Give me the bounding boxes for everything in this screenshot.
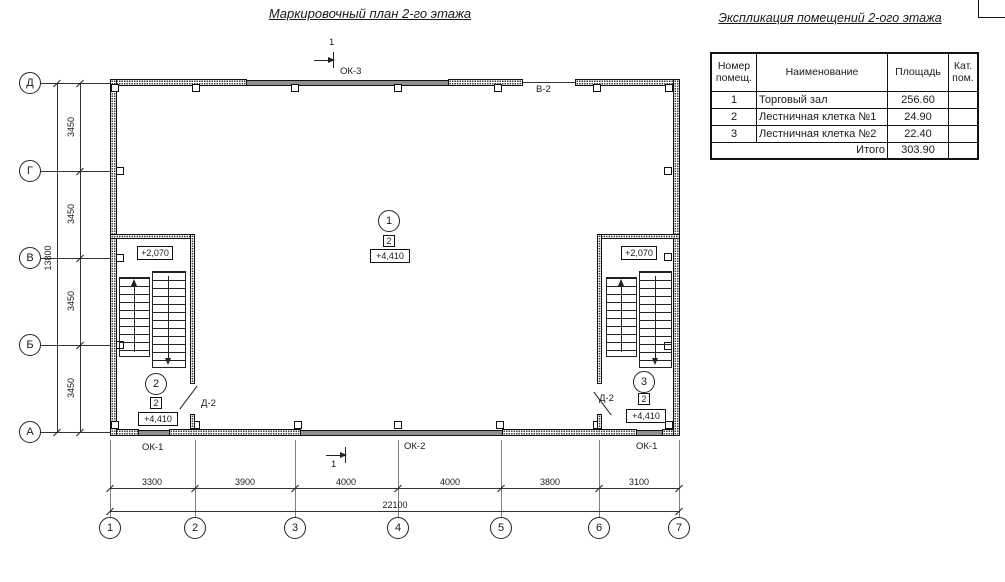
axis-bubble-row: А bbox=[19, 421, 41, 443]
window-label-ok2: ОК-2 bbox=[404, 441, 425, 452]
dim-total-label: 13800 bbox=[43, 245, 53, 270]
wall-bottom-segment bbox=[502, 429, 637, 436]
stair2-top-wall bbox=[597, 234, 680, 239]
room-number-bubble: 1 bbox=[378, 210, 400, 232]
frame-corner-vertical-line bbox=[978, 0, 979, 18]
column-marker bbox=[294, 421, 302, 429]
axis-bubble-col: 1 bbox=[99, 517, 121, 539]
schedule-row: 3 Лестничная клетка №2 22.40 bbox=[711, 125, 978, 142]
schedule-header-name: Наименование bbox=[757, 53, 888, 91]
dim-label: 3450 bbox=[66, 204, 76, 224]
opening-v2-line bbox=[523, 82, 575, 83]
stair1-door-jamb bbox=[190, 414, 195, 429]
extension-line bbox=[110, 440, 111, 517]
door-label-d2-left: Д-2 bbox=[201, 398, 216, 409]
room-number-bubble: 3 bbox=[633, 371, 655, 393]
schedule-header-number: Номер помещ. bbox=[711, 53, 757, 91]
schedule-cell-category bbox=[949, 91, 979, 108]
schedule-header-area: Площадь bbox=[888, 53, 949, 91]
schedule-total-area: 303.90 bbox=[888, 142, 949, 159]
axis-bubble-row: В bbox=[19, 247, 41, 269]
axis-line bbox=[41, 83, 111, 84]
room-number-bubble: 2 bbox=[145, 373, 167, 395]
opening-label-v2: В-2 bbox=[536, 84, 551, 95]
dim-label: 3900 bbox=[235, 477, 255, 487]
column-marker bbox=[664, 167, 672, 175]
wall-top-segment bbox=[110, 79, 247, 86]
column-marker bbox=[116, 167, 124, 175]
schedule-cell-name: Лестничная клетка №1 bbox=[757, 108, 888, 125]
column-marker bbox=[394, 84, 402, 92]
column-marker bbox=[494, 84, 502, 92]
room-type-square: 2 bbox=[383, 235, 395, 247]
schedule-cell-number: 3 bbox=[711, 125, 757, 142]
elevation-mark: +2,070 bbox=[137, 246, 173, 260]
window-ok1-left bbox=[139, 430, 169, 436]
dim-label: 3300 bbox=[142, 477, 162, 487]
schedule-cell-name: Торговый зал bbox=[757, 91, 888, 108]
extension-line bbox=[679, 440, 680, 517]
axis-bubble-row: Д bbox=[19, 72, 41, 94]
axis-bubble-col: 3 bbox=[284, 517, 306, 539]
schedule-cell-category bbox=[949, 125, 979, 142]
column-marker bbox=[291, 84, 299, 92]
frame-corner-horizontal-line bbox=[978, 17, 1005, 18]
schedule-row: 2 Лестничная клетка №1 24.90 bbox=[711, 108, 978, 125]
dim-label: 3450 bbox=[66, 378, 76, 398]
extension-line bbox=[195, 440, 196, 517]
stair1-up-arrow-line bbox=[134, 282, 135, 352]
window-label-ok1-right: ОК-1 bbox=[636, 441, 657, 452]
schedule-total-category bbox=[949, 142, 979, 159]
extension-line bbox=[295, 440, 296, 517]
wall-right bbox=[673, 79, 680, 436]
dim-label: 3450 bbox=[66, 117, 76, 137]
section-mark-number-bottom: 1 bbox=[331, 459, 336, 470]
door-leaf-d2-left bbox=[179, 386, 197, 410]
schedule-header-row: Номер помещ. Наименование Площадь Кат. п… bbox=[711, 53, 978, 91]
axis-bubble-col: 5 bbox=[490, 517, 512, 539]
window-label-ok3: ОК-3 bbox=[340, 66, 361, 77]
schedule-header-category: Кат. пом. bbox=[949, 53, 979, 91]
schedule-title: Экспликация помещений 2-ого этажа bbox=[702, 11, 958, 25]
schedule-cell-number: 1 bbox=[711, 91, 757, 108]
window-ok1-right bbox=[637, 430, 662, 436]
extension-line bbox=[501, 440, 502, 517]
stair1-flight-down bbox=[152, 271, 186, 368]
door-label-d2-right: Д-2 bbox=[599, 393, 614, 404]
column-marker bbox=[593, 84, 601, 92]
room-type-square: 2 bbox=[150, 397, 162, 409]
axis-bubble-col: 2 bbox=[184, 517, 206, 539]
schedule-cell-area: 24.90 bbox=[888, 108, 949, 125]
stair2-left-wall bbox=[597, 234, 602, 384]
dim-label: 4000 bbox=[440, 477, 460, 487]
elevation-mark: +4,410 bbox=[138, 412, 178, 426]
down-arrow-icon bbox=[165, 358, 171, 365]
axis-line bbox=[41, 432, 111, 433]
dimension-line-bottom-total bbox=[110, 511, 680, 512]
axis-bubble-col: 6 bbox=[588, 517, 610, 539]
up-arrow-icon bbox=[131, 279, 137, 286]
dimension-line-left-total bbox=[57, 83, 58, 432]
extension-line bbox=[599, 440, 600, 517]
drawing-sheet: Маркировочный план 2-го этажа Экспликаци… bbox=[0, 0, 1005, 582]
window-label-ok1-left: ОК-1 bbox=[142, 442, 163, 453]
wall-bottom-segment bbox=[169, 429, 301, 436]
column-marker bbox=[496, 421, 504, 429]
schedule-total-row: Итого 303.90 bbox=[711, 142, 978, 159]
window-ok3 bbox=[247, 80, 448, 86]
dim-label: 3800 bbox=[540, 477, 560, 487]
schedule-cell-number: 2 bbox=[711, 108, 757, 125]
schedule-total-label: Итого bbox=[711, 142, 888, 159]
column-marker bbox=[394, 421, 402, 429]
axis-bubble-row: Б bbox=[19, 334, 41, 356]
elevation-mark: +4,410 bbox=[370, 249, 410, 263]
stair1-right-wall bbox=[190, 234, 195, 384]
column-marker bbox=[111, 421, 119, 429]
schedule-cell-name: Лестничная клетка №2 bbox=[757, 125, 888, 142]
elevation-mark: +4,410 bbox=[626, 409, 666, 423]
section-tick-bottom bbox=[345, 447, 346, 463]
axis-bubble-col: 7 bbox=[668, 517, 690, 539]
schedule-cell-category bbox=[949, 108, 979, 125]
elevation-mark: +2,070 bbox=[621, 246, 657, 260]
wall-top-segment bbox=[448, 79, 523, 86]
stair2-door-jamb bbox=[597, 414, 602, 429]
room-type-square: 2 bbox=[638, 393, 650, 405]
stair1-top-wall bbox=[110, 234, 195, 239]
schedule-cell-area: 256.60 bbox=[888, 91, 949, 108]
schedule-cell-area: 22.40 bbox=[888, 125, 949, 142]
dim-total-label: 22100 bbox=[382, 500, 407, 510]
column-marker bbox=[665, 421, 673, 429]
axis-line bbox=[41, 171, 111, 172]
schedule-row: 1 Торговый зал 256.60 bbox=[711, 91, 978, 108]
dim-label: 3100 bbox=[629, 477, 649, 487]
column-marker bbox=[665, 84, 673, 92]
axis-bubble-col: 4 bbox=[387, 517, 409, 539]
axis-bubble-row: Г bbox=[19, 160, 41, 182]
room-schedule-table: Номер помещ. Наименование Площадь Кат. п… bbox=[710, 52, 979, 160]
plan-title: Маркировочный план 2-го этажа bbox=[230, 6, 510, 21]
column-marker bbox=[111, 84, 119, 92]
axis-line bbox=[41, 345, 111, 346]
stair2-down-arrow-line bbox=[655, 276, 656, 360]
stair1-down-arrow-line bbox=[168, 276, 169, 360]
column-marker bbox=[192, 84, 200, 92]
section-mark-number-top: 1 bbox=[329, 37, 334, 48]
stair2-up-arrow-line bbox=[621, 282, 622, 352]
column-marker bbox=[116, 254, 124, 262]
dim-label: 4000 bbox=[336, 477, 356, 487]
dim-label: 3450 bbox=[66, 291, 76, 311]
window-ok2 bbox=[301, 430, 502, 436]
up-arrow-icon bbox=[618, 279, 624, 286]
column-marker bbox=[664, 253, 672, 261]
section-tick-top bbox=[333, 52, 334, 68]
down-arrow-icon bbox=[652, 358, 658, 365]
